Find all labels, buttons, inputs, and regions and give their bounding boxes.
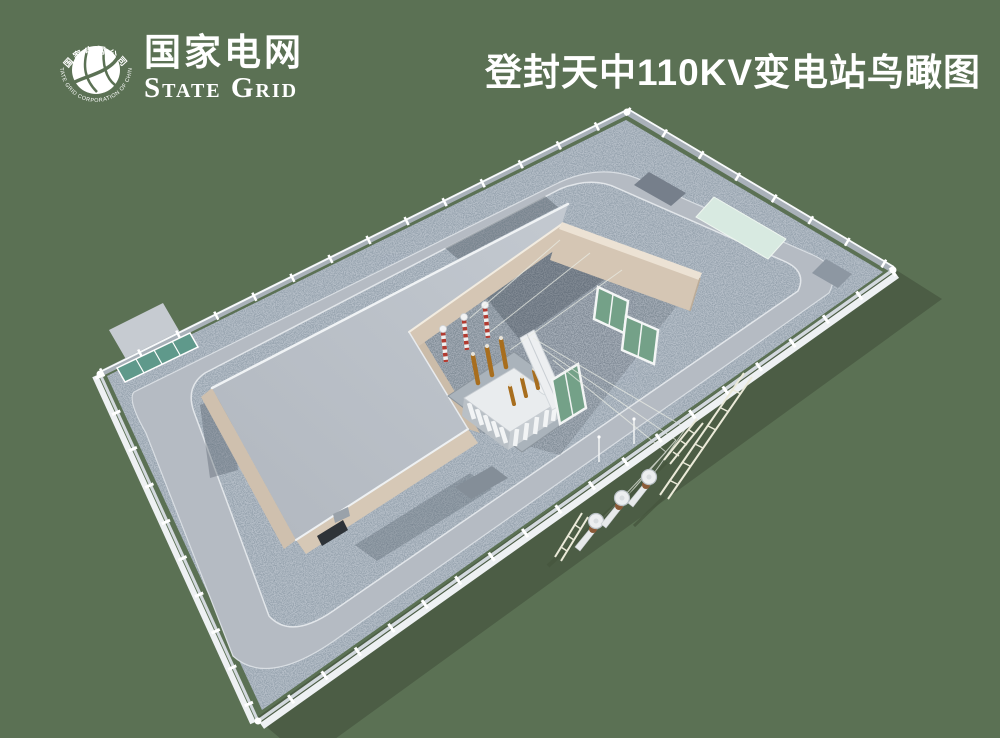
- logo-name-en: State Grid: [144, 74, 304, 103]
- state-grid-emblem-icon: 国家电网公司 STATE GRID CORPORATION OF CHINA: [52, 26, 140, 111]
- logo-name-cn: 国家电网: [144, 34, 304, 73]
- poster: 国家电网公司 STATE GRID CORPORATION OF CHINA 国…: [0, 0, 1000, 738]
- header: 国家电网公司 STATE GRID CORPORATION OF CHINA 国…: [0, 0, 1000, 120]
- page-title: 登封天中110KV变电站鸟瞰图: [483, 42, 983, 96]
- logo-wordmark: 国家电网 State Grid: [144, 34, 304, 103]
